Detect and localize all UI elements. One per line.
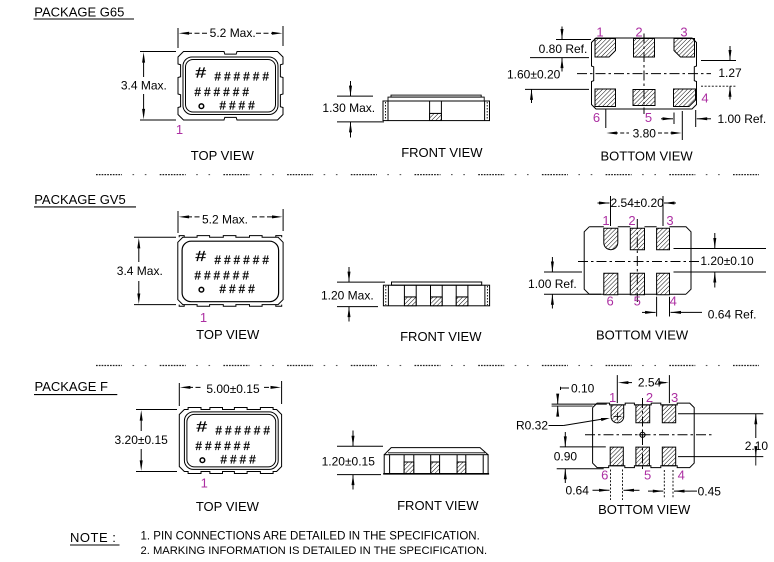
svg-text:5.2 Max.: 5.2 Max.: [202, 212, 248, 226]
svg-text:TOP VIEW: TOP VIEW: [191, 148, 255, 163]
svg-text:# # # #: # # # #: [221, 454, 257, 466]
svg-text:# # # # # #: # # # # # #: [196, 441, 251, 453]
svg-text:4: 4: [701, 91, 708, 106]
svg-text:1: 1: [200, 310, 207, 325]
svg-text:0.64 Ref.: 0.64 Ref.: [708, 307, 757, 321]
svg-text:5: 5: [644, 468, 651, 483]
svg-text:# # # # # #: # # # # # #: [195, 271, 250, 283]
svg-text:3.4 Max.: 3.4 Max.: [121, 79, 167, 93]
svg-text:1.20±0.15: 1.20±0.15: [322, 455, 376, 469]
svg-text:6: 6: [593, 110, 600, 125]
svg-text:PACKAGE G65: PACKAGE G65: [34, 4, 124, 19]
svg-text:NOTE :: NOTE :: [70, 530, 116, 545]
svg-text:1.00 Ref.: 1.00 Ref.: [528, 277, 577, 291]
svg-text:1: 1: [176, 122, 183, 137]
svg-text:2.54±0.20: 2.54±0.20: [611, 196, 665, 210]
svg-text:5: 5: [645, 110, 652, 125]
svg-text:# # # # # #: # # # # # #: [215, 72, 270, 84]
svg-text:# # # # # #: # # # # # #: [216, 426, 271, 438]
svg-text:3: 3: [680, 25, 687, 40]
svg-text:2.10: 2.10: [745, 439, 769, 453]
svg-text:3.20±0.15: 3.20±0.15: [115, 433, 169, 447]
svg-text:3: 3: [671, 390, 678, 405]
svg-text:BOTTOM VIEW: BOTTOM VIEW: [600, 149, 693, 164]
svg-text:TOP VIEW: TOP VIEW: [196, 499, 260, 514]
svg-text:0.80 Ref.: 0.80 Ref.: [539, 42, 588, 56]
svg-text:3.80: 3.80: [633, 127, 657, 141]
svg-text:0.45: 0.45: [698, 484, 722, 498]
svg-text:BOTTOM VIEW: BOTTOM VIEW: [598, 502, 691, 517]
svg-text:2: 2: [628, 213, 635, 228]
svg-text:2: 2: [646, 390, 653, 405]
svg-text:5: 5: [634, 294, 641, 309]
svg-text:1.20±0.10: 1.20±0.10: [700, 254, 754, 268]
svg-text:1.27: 1.27: [718, 66, 742, 80]
svg-text:3.4 Max.: 3.4 Max.: [117, 264, 163, 278]
svg-text:1.20 Max.: 1.20 Max.: [321, 288, 374, 302]
svg-text:#: #: [196, 249, 207, 265]
svg-text:# # # #: # # # #: [220, 100, 256, 112]
svg-text:PACKAGE GV5: PACKAGE GV5: [34, 192, 126, 207]
svg-text:2: 2: [635, 25, 642, 40]
svg-text:BOTTOM VIEW: BOTTOM VIEW: [596, 328, 689, 343]
svg-text:2.54: 2.54: [638, 376, 662, 390]
svg-text:4: 4: [678, 468, 685, 483]
svg-text:# # # # # #: # # # # # #: [195, 87, 250, 99]
svg-text:FRONT VIEW: FRONT VIEW: [397, 498, 479, 513]
svg-text:FRONT VIEW: FRONT VIEW: [400, 329, 482, 344]
svg-text:6: 6: [601, 468, 608, 483]
svg-text:#: #: [197, 420, 208, 436]
svg-text:TOP VIEW: TOP VIEW: [196, 327, 260, 342]
svg-text:4: 4: [670, 294, 677, 309]
svg-text:0.10: 0.10: [571, 381, 595, 395]
svg-text:1: 1: [602, 213, 609, 228]
svg-text:1.60±0.20: 1.60±0.20: [507, 68, 561, 82]
svg-text:1.00 Ref.: 1.00 Ref.: [718, 112, 767, 126]
svg-text:1: 1: [596, 25, 603, 40]
svg-text:3: 3: [666, 213, 673, 228]
svg-text:R0.32: R0.32: [516, 419, 548, 433]
svg-text:6: 6: [606, 294, 613, 309]
svg-text:1. PIN CONNECTIONS ARE DETAILE: 1. PIN CONNECTIONS ARE DETAILED IN THE S…: [141, 531, 480, 543]
svg-text:# # # #: # # # #: [220, 284, 256, 296]
svg-text:FRONT VIEW: FRONT VIEW: [401, 145, 483, 160]
svg-text:1: 1: [201, 476, 208, 491]
svg-text:5.00±0.15: 5.00±0.15: [206, 382, 260, 396]
svg-text:# # # # # #: # # # # # #: [215, 255, 270, 267]
svg-text:0.90: 0.90: [554, 449, 578, 463]
svg-text:0.64: 0.64: [566, 483, 590, 497]
svg-text:5.2 Max.: 5.2 Max.: [210, 26, 256, 40]
svg-text:#: #: [196, 66, 207, 82]
svg-text:PACKAGE F: PACKAGE F: [35, 379, 109, 394]
svg-text:2. MARKING INFORMATION IS DETA: 2. MARKING INFORMATION IS DETAILED IN TH…: [141, 545, 488, 557]
svg-text:1.30 Max.: 1.30 Max.: [322, 101, 375, 115]
svg-text:1: 1: [609, 390, 616, 405]
